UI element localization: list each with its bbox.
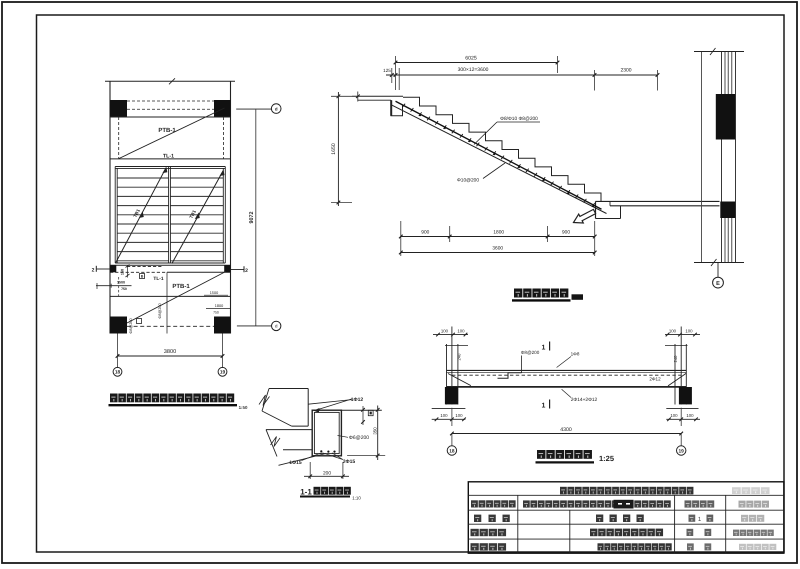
svg-text:2: 2 xyxy=(92,267,95,273)
svg-text:1:25: 1:25 xyxy=(599,454,614,463)
svg-text:100: 100 xyxy=(455,413,463,418)
svg-text:1800: 1800 xyxy=(215,304,223,308)
svg-text:1: 1 xyxy=(542,345,546,352)
svg-text:2300: 2300 xyxy=(620,68,631,74)
svg-text:240: 240 xyxy=(456,353,461,361)
svg-text:1500: 1500 xyxy=(117,281,125,285)
svg-text:100: 100 xyxy=(686,413,694,418)
svg-text:750: 750 xyxy=(121,287,127,291)
svg-text:d: d xyxy=(275,324,278,329)
svg-text:PTB-1: PTB-1 xyxy=(158,127,176,134)
svg-text:6025: 6025 xyxy=(465,56,477,62)
svg-text:1:10: 1:10 xyxy=(352,496,361,501)
svg-text:19: 19 xyxy=(679,449,685,455)
svg-text:300×12=3600: 300×12=3600 xyxy=(458,67,489,73)
svg-text:1-1: 1-1 xyxy=(300,488,312,497)
svg-text:2Φ12: 2Φ12 xyxy=(649,377,661,382)
svg-text:1500: 1500 xyxy=(210,291,218,295)
svg-text:TL-1: TL-1 xyxy=(163,154,174,160)
svg-text:150: 150 xyxy=(121,269,125,275)
svg-text:1Φ15: 1Φ15 xyxy=(289,460,302,466)
svg-text:100: 100 xyxy=(441,328,449,333)
svg-text:1:50: 1:50 xyxy=(239,405,248,410)
svg-text:2: 2 xyxy=(245,268,248,274)
svg-text:19: 19 xyxy=(220,370,226,376)
svg-text:750: 750 xyxy=(213,311,219,315)
svg-text:B: B xyxy=(141,275,144,279)
svg-text:2Φ14+2Φ12: 2Φ14+2Φ12 xyxy=(571,397,598,403)
svg-text:200: 200 xyxy=(323,471,331,477)
svg-text:PTB-1: PTB-1 xyxy=(172,283,190,290)
svg-text:3800: 3800 xyxy=(164,349,176,355)
svg-text:4300: 4300 xyxy=(560,427,572,433)
svg-text:d: d xyxy=(275,106,278,111)
svg-text:Φ8@200: Φ8@200 xyxy=(521,350,540,355)
svg-text:1800: 1800 xyxy=(493,230,504,236)
svg-text:9072: 9072 xyxy=(249,212,255,224)
svg-text:Φ10@200: Φ10@200 xyxy=(457,178,479,184)
svg-text:3600: 3600 xyxy=(492,246,503,252)
svg-text:350: 350 xyxy=(372,427,377,435)
svg-text:TL-1: TL-1 xyxy=(153,276,163,282)
svg-text:125: 125 xyxy=(383,68,391,73)
svg-text:Φ6@200: Φ6@200 xyxy=(349,435,369,441)
svg-text:18: 18 xyxy=(449,449,455,455)
svg-text:900: 900 xyxy=(562,230,570,236)
svg-text:1Φ12: 1Φ12 xyxy=(351,397,364,403)
svg-text:900: 900 xyxy=(421,230,429,236)
svg-text:1: 1 xyxy=(542,403,546,410)
svg-text:18: 18 xyxy=(115,370,121,376)
svg-text:1650: 1650 xyxy=(331,143,337,155)
svg-text:100: 100 xyxy=(440,413,448,418)
svg-text:100: 100 xyxy=(685,328,693,333)
svg-text:2Φ15: 2Φ15 xyxy=(343,459,356,465)
svg-text:100: 100 xyxy=(669,328,677,333)
svg-text:1Φ8: 1Φ8 xyxy=(571,352,580,357)
svg-text:100: 100 xyxy=(670,413,678,418)
svg-text:E: E xyxy=(716,281,720,287)
svg-text:240: 240 xyxy=(673,355,678,363)
svg-text:Φ8/Φ10 Φ8@200: Φ8/Φ10 Φ8@200 xyxy=(500,116,538,122)
svg-text:Φ8@200: Φ8@200 xyxy=(129,318,133,333)
svg-text:Φ8@200: Φ8@200 xyxy=(158,303,162,318)
svg-text:100: 100 xyxy=(457,328,465,333)
